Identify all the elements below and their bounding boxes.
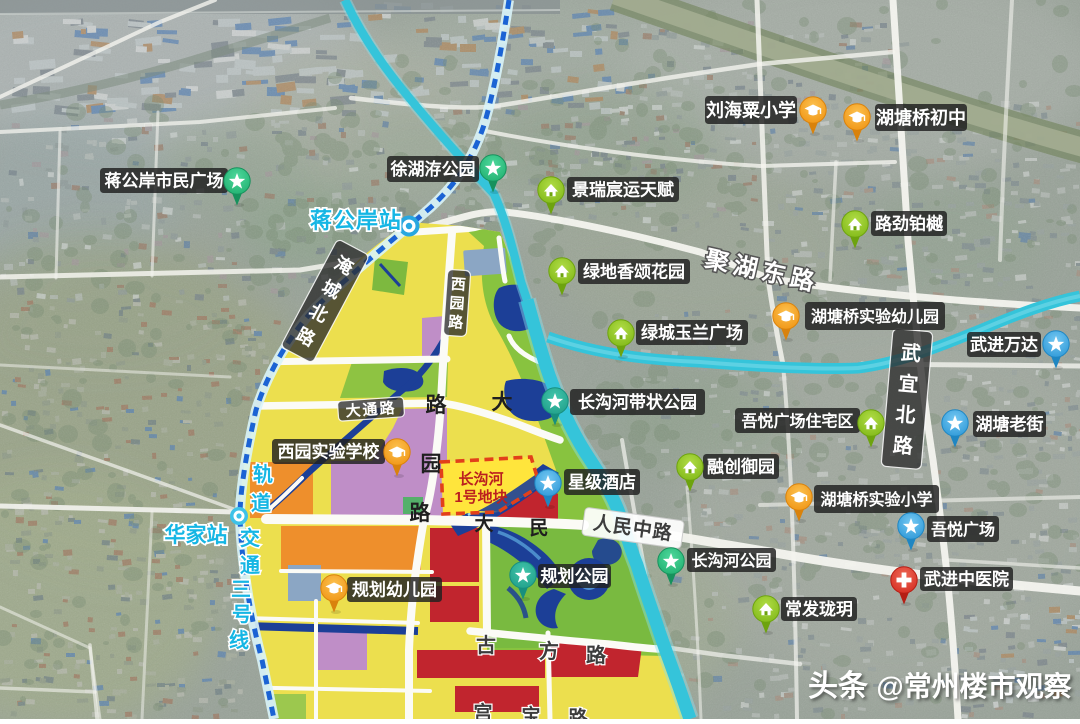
svg-text:宜: 宜 (897, 371, 919, 397)
svg-text:大通路: 大通路 (345, 399, 397, 421)
svg-text:绿城玉兰广场: 绿城玉兰广场 (641, 323, 743, 343)
svg-text:大: 大 (492, 391, 513, 414)
svg-text:宫: 宫 (473, 701, 492, 719)
svg-text:吾悦广场: 吾悦广场 (931, 520, 995, 539)
svg-text:武: 武 (900, 341, 922, 366)
svg-text:蒋公岸站: 蒋公岸站 (310, 208, 402, 233)
svg-text:头条 @常州楼市观察: 头条 @常州楼市观察 (808, 670, 1073, 703)
svg-text:蒋公岸市民广场: 蒋公岸市民广场 (105, 171, 224, 191)
svg-text:常发珑玥: 常发珑玥 (785, 599, 853, 619)
svg-text:古: 古 (476, 633, 496, 657)
svg-text:湖塘桥实验幼儿园: 湖塘桥实验幼儿园 (811, 307, 939, 326)
svg-text:北: 北 (895, 403, 917, 428)
svg-text:华家站: 华家站 (165, 523, 228, 547)
svg-text:星级酒店: 星级酒店 (568, 472, 636, 492)
svg-text:长沟河公园: 长沟河公园 (691, 551, 771, 570)
svg-text:湖塘桥初中: 湖塘桥初中 (876, 107, 966, 128)
svg-text:道: 道 (251, 491, 271, 515)
svg-text:路: 路 (448, 313, 465, 332)
svg-text:西: 西 (450, 276, 466, 294)
svg-text:吾悦广场住宅区: 吾悦广场住宅区 (741, 411, 853, 430)
svg-text:通: 通 (240, 554, 260, 577)
svg-text:方: 方 (539, 639, 559, 663)
svg-text:路: 路 (586, 643, 607, 667)
svg-text:1号地块: 1号地块 (454, 488, 508, 506)
svg-text:路劲铂樾: 路劲铂樾 (875, 214, 944, 234)
svg-text:长沟河: 长沟河 (458, 470, 503, 488)
svg-text:徐湖洊公园: 徐湖洊公园 (390, 159, 476, 179)
svg-text:武进万达: 武进万达 (970, 335, 1038, 355)
svg-text:园: 园 (449, 295, 465, 313)
svg-text:景瑞宸运天赋: 景瑞宸运天赋 (572, 180, 674, 200)
svg-text:规划公园: 规划公园 (541, 566, 609, 586)
svg-text:轨: 轨 (253, 462, 273, 486)
svg-text:刘海粟小学: 刘海粟小学 (706, 100, 796, 121)
svg-text:路: 路 (426, 393, 448, 417)
svg-text:交: 交 (240, 526, 260, 550)
svg-text:长沟河带状公园: 长沟河带状公园 (578, 392, 697, 412)
svg-text:湖塘老街: 湖塘老街 (976, 414, 1044, 434)
svg-text:武进中医院: 武进中医院 (924, 569, 1009, 589)
svg-text:西园实验学校: 西园实验学校 (278, 442, 381, 462)
svg-text:路: 路 (410, 501, 432, 525)
svg-text:路: 路 (568, 706, 588, 719)
svg-text:线: 线 (229, 628, 249, 652)
svg-text:园: 园 (421, 453, 442, 476)
svg-text:大: 大 (474, 512, 493, 535)
svg-text:号: 号 (232, 603, 252, 626)
svg-text:路: 路 (892, 433, 915, 459)
svg-text:宝: 宝 (521, 704, 540, 719)
svg-text:民: 民 (529, 518, 548, 539)
svg-text:绿地香颂花园: 绿地香颂花园 (583, 262, 685, 282)
svg-text:湖塘桥实验小学: 湖塘桥实验小学 (820, 490, 932, 509)
svg-text:规划幼儿园: 规划幼儿园 (352, 580, 437, 600)
svg-text:三: 三 (231, 579, 251, 601)
svg-text:融创御园: 融创御园 (707, 457, 775, 477)
